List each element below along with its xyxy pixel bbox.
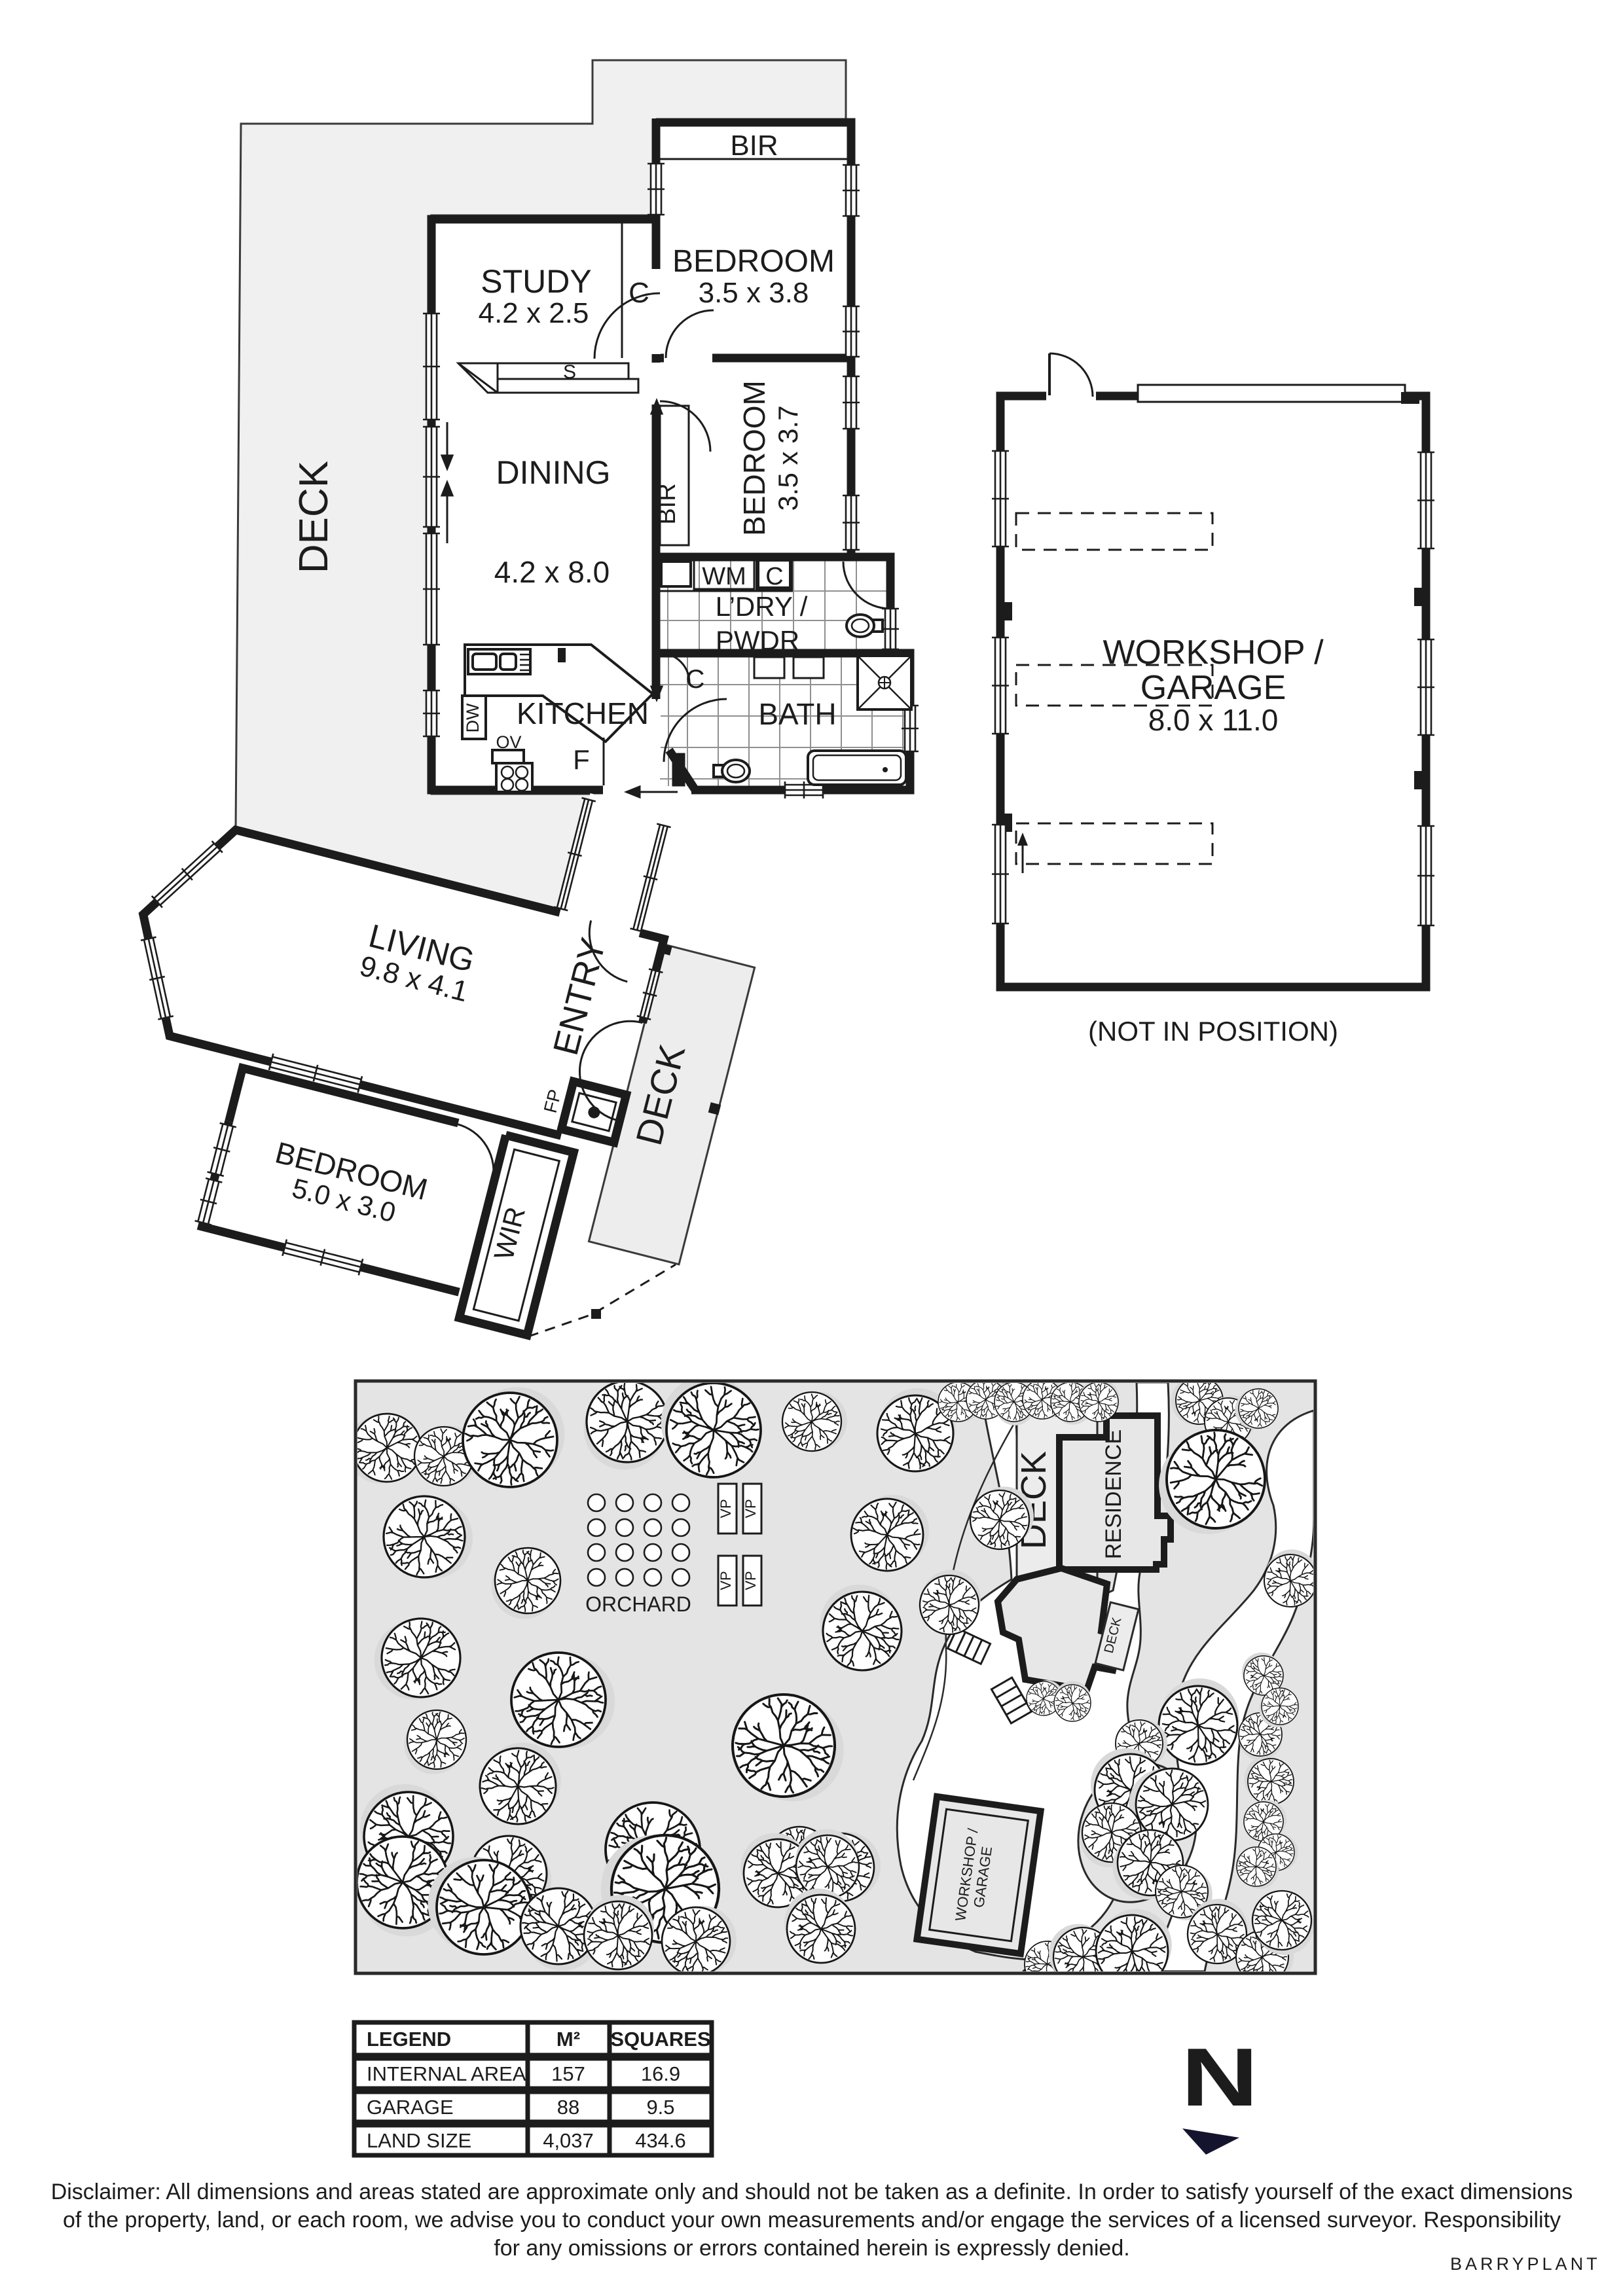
svg-text:BARRYPLANT: BARRYPLANT [1450,2254,1601,2274]
svg-text:434.6: 434.6 [635,2129,686,2152]
svg-text:4.2 x 8.0: 4.2 x 8.0 [494,555,610,589]
svg-text:LEGEND: LEGEND [367,2028,451,2051]
svg-text:ORCHARD: ORCHARD [585,1592,691,1616]
svg-text:F: F [573,744,590,775]
svg-text:BIR: BIR [653,483,681,524]
svg-text:C: C [629,277,649,309]
svg-text:GARAGE: GARAGE [367,2096,454,2119]
svg-text:for any omissions or errors co: for any omissions or errors contained he… [494,2236,1129,2261]
svg-text:4.2 x 2.5: 4.2 x 2.5 [479,297,589,329]
svg-text:S: S [563,361,576,383]
svg-text:DINING: DINING [496,454,611,491]
svg-text:DECK: DECK [291,461,337,573]
svg-text:VP: VP [742,1499,759,1518]
svg-text:VP: VP [718,1499,734,1518]
svg-text:8.0 x 11.0: 8.0 x 11.0 [1148,703,1279,737]
svg-text:16.9: 16.9 [641,2062,680,2085]
svg-text:WORKSHOP /: WORKSHOP / [1103,634,1324,672]
svg-text:of the property, land, or each: of the property, land, or each room, we … [63,2208,1561,2233]
svg-text:BATH: BATH [758,697,836,731]
svg-text:3.5 x 3.8: 3.5 x 3.8 [699,277,809,309]
svg-text:88: 88 [557,2096,579,2119]
svg-text:(NOT IN POSITION): (NOT IN POSITION) [1088,1016,1338,1047]
svg-text:BEDROOM: BEDROOM [672,244,835,279]
svg-text:VP: VP [718,1571,734,1590]
svg-text:N: N [1181,2031,1258,2123]
svg-text:SQUARES: SQUARES [610,2028,710,2051]
svg-text:OV: OV [496,732,521,752]
svg-text:INTERNAL AREA: INTERNAL AREA [367,2062,526,2085]
svg-text:RESIDENCE: RESIDENCE [1101,1429,1126,1559]
svg-text:C: C [765,563,783,590]
svg-text:Disclaimer: All dimensions and: Disclaimer: All dimensions and areas sta… [51,2179,1573,2204]
svg-text:3.5 x 3.7: 3.5 x 3.7 [773,405,803,511]
svg-text:DW: DW [463,703,483,732]
svg-text:PWDR: PWDR [716,625,799,656]
svg-text:157: 157 [551,2062,585,2085]
svg-text:L’DRY /: L’DRY / [716,591,808,622]
svg-text:9.5: 9.5 [646,2096,674,2119]
svg-text:M²: M² [556,2028,580,2051]
svg-text:4,037: 4,037 [543,2129,594,2152]
svg-text:GARAGE: GARAGE [1140,669,1286,707]
svg-text:BIR: BIR [730,130,778,162]
svg-text:WM: WM [702,563,746,590]
svg-text:VP: VP [742,1571,759,1590]
svg-text:STUDY: STUDY [481,263,591,300]
svg-text:BEDROOM: BEDROOM [737,380,771,536]
svg-text:LAND SIZE: LAND SIZE [367,2129,471,2152]
svg-text:KITCHEN: KITCHEN [517,696,649,730]
svg-text:C: C [686,665,705,694]
